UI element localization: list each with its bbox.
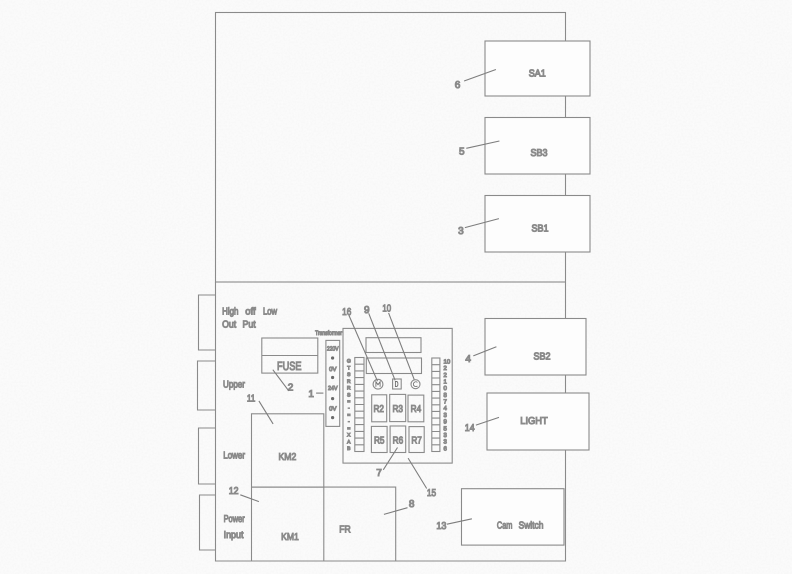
- svg-text:16: 16: [342, 307, 351, 318]
- svg-text:Switch: Switch: [519, 521, 544, 532]
- svg-text:G: G: [347, 359, 351, 365]
- svg-text:1: 1: [308, 389, 314, 400]
- svg-text:R: R: [347, 379, 351, 385]
- svg-text:13: 13: [436, 521, 446, 532]
- svg-text:SB2: SB2: [534, 352, 551, 363]
- svg-text:=: =: [347, 399, 350, 405]
- svg-text:KM1: KM1: [281, 532, 299, 543]
- svg-text:5: 5: [459, 147, 465, 158]
- svg-text:R2: R2: [373, 404, 384, 415]
- svg-text:SA1: SA1: [529, 69, 546, 80]
- svg-text:off: off: [245, 307, 256, 318]
- svg-text:R7: R7: [411, 436, 422, 447]
- svg-text:Cam: Cam: [497, 521, 513, 532]
- svg-text:24V: 24V: [328, 385, 338, 392]
- svg-text:SB3: SB3: [531, 148, 548, 159]
- svg-text:Transformer: Transformer: [315, 330, 343, 337]
- svg-text:7: 7: [376, 468, 382, 479]
- svg-text:R: R: [347, 386, 351, 392]
- svg-text:=: =: [347, 426, 350, 432]
- svg-text:8: 8: [409, 499, 415, 510]
- svg-text:=: =: [347, 412, 350, 418]
- svg-text:R6: R6: [393, 436, 404, 447]
- svg-text:2: 2: [288, 383, 294, 394]
- svg-text:R4: R4: [411, 404, 422, 415]
- svg-text:11: 11: [247, 394, 256, 405]
- svg-text:Power: Power: [224, 514, 246, 525]
- svg-text:12: 12: [229, 486, 239, 497]
- svg-text:Put: Put: [243, 320, 256, 331]
- svg-text:0V: 0V: [329, 406, 336, 413]
- svg-text:10: 10: [444, 359, 451, 366]
- svg-text:15: 15: [427, 488, 437, 499]
- svg-text:Upper: Upper: [223, 380, 246, 391]
- svg-text:Low: Low: [263, 307, 278, 318]
- svg-text:Input: Input: [224, 530, 244, 541]
- svg-text:Lower: Lower: [223, 451, 245, 462]
- svg-text:Out: Out: [222, 320, 236, 331]
- svg-text:FUSE: FUSE: [277, 359, 302, 373]
- svg-text:T: T: [347, 365, 350, 371]
- svg-text:FR: FR: [339, 524, 351, 535]
- svg-text:6: 6: [455, 80, 461, 91]
- svg-text:High: High: [222, 307, 238, 318]
- svg-text:4: 4: [465, 354, 471, 365]
- svg-text:R5: R5: [374, 436, 385, 447]
- svg-text:SB1: SB1: [532, 223, 549, 234]
- svg-text:KM2: KM2: [279, 452, 297, 463]
- svg-text:0V: 0V: [329, 366, 336, 373]
- svg-text:14: 14: [465, 423, 475, 434]
- svg-text:3: 3: [458, 226, 464, 237]
- svg-text:220V: 220V: [327, 346, 339, 353]
- svg-text:10: 10: [382, 304, 391, 315]
- svg-text:LIGHT: LIGHT: [520, 416, 548, 427]
- svg-text:R3: R3: [392, 404, 403, 415]
